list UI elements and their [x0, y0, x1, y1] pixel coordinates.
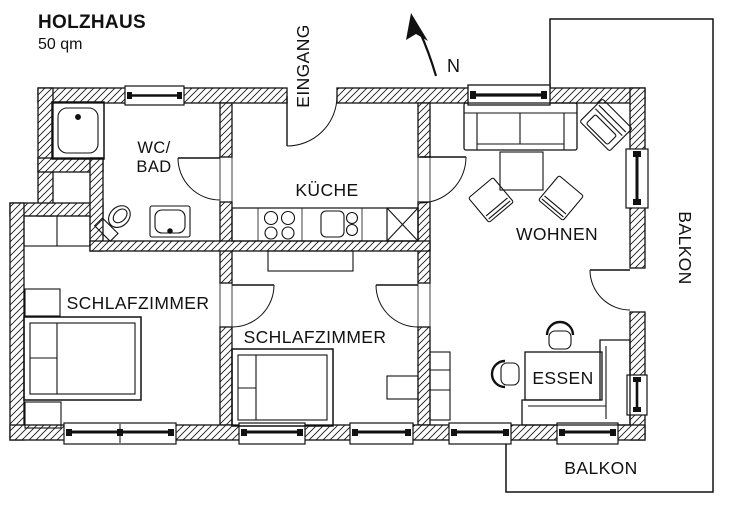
wall-bottom-4	[410, 425, 452, 440]
floor-plan-drawing: N HOLZHAUS 50 qm EINGANG WC/ BAD KÜCHE W…	[0, 0, 732, 506]
wall-a-lower	[220, 327, 232, 425]
wall-bottom-2	[173, 425, 242, 440]
wall-top-2	[182, 88, 287, 103]
room-label-kueche: KÜCHE	[295, 180, 358, 200]
wall-right-1	[630, 88, 645, 150]
window-living-bottom	[449, 423, 511, 444]
room-label-essen: ESSEN	[532, 368, 593, 388]
window-dining-bottom	[557, 423, 618, 444]
balcony-label-bottom: BALKON	[564, 458, 637, 478]
room-label-bad: BAD	[136, 158, 171, 176]
window-bath-top	[125, 86, 184, 105]
window-bedroom2-bottom-right	[350, 423, 413, 444]
entrance-label: EINGANG	[293, 24, 313, 108]
room-label-schlafzimmer-left: SCHLAFZIMMER	[67, 293, 210, 313]
wall-bottom-3	[302, 425, 353, 440]
balcony-label-right: BALKON	[675, 211, 695, 284]
wall-kitchen-south	[90, 241, 430, 251]
wall-top-3	[337, 88, 470, 103]
wall-right-3	[630, 312, 645, 376]
room-label-wc: WC/	[137, 139, 170, 157]
wall-bottom-1	[10, 425, 67, 440]
wall-bottom-6	[615, 425, 645, 440]
wall-b-upper	[418, 103, 430, 157]
wall-b-lower	[418, 327, 430, 425]
room-label-wohnen: WOHNEN	[516, 224, 598, 244]
wall-bath-left	[90, 158, 103, 251]
wall-bottom-5	[508, 425, 560, 440]
north-label: N	[447, 56, 460, 76]
window-bedroom1-bottom	[64, 423, 176, 444]
wall-left-lower	[10, 203, 24, 440]
wall-left-upper	[38, 88, 53, 216]
window-balcony-right-upper	[626, 149, 648, 208]
wall-right-2	[630, 207, 645, 268]
floor-plan-page: N HOLZHAUS 50 qm EINGANG WC/ BAD KÜCHE W…	[0, 0, 732, 506]
wall-a-upper	[220, 103, 232, 157]
area-label: 50 qm	[38, 36, 82, 53]
page-title: HOLZHAUS	[38, 12, 146, 33]
room-label-schlafzimmer-middle: SCHLAFZIMMER	[244, 327, 387, 347]
window-living-top	[468, 85, 550, 105]
